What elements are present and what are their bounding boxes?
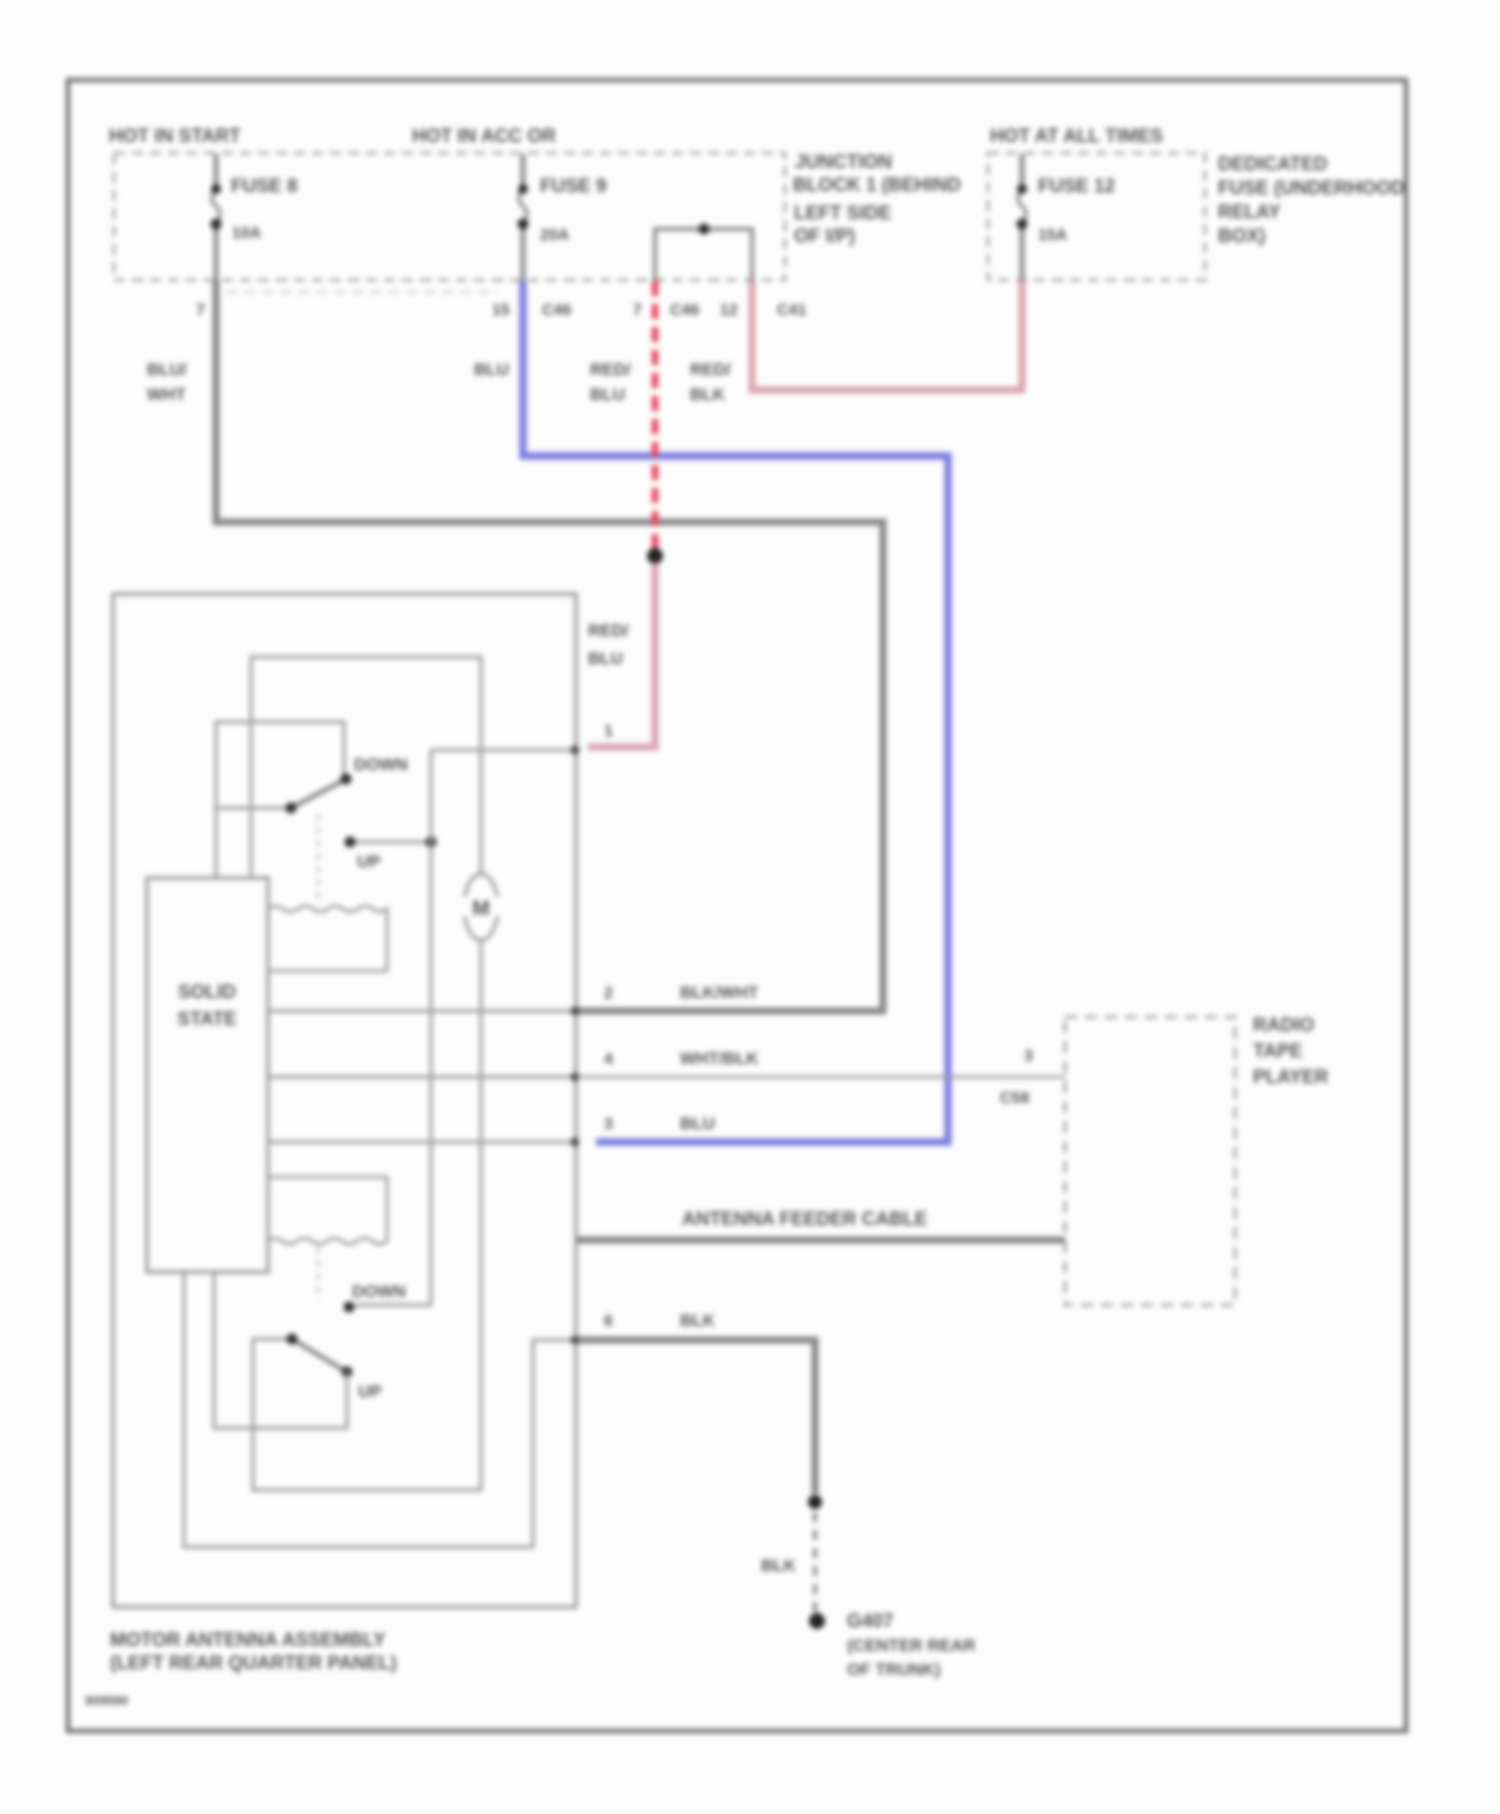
- svg-text:1: 1: [604, 723, 613, 740]
- svg-text:RED/: RED/: [590, 360, 631, 379]
- svg-text:FUSE 9: FUSE 9: [540, 176, 607, 197]
- svg-text:BLOCK 1 (BEHIND: BLOCK 1 (BEHIND: [793, 175, 961, 196]
- svg-text:WHT/BLK: WHT/BLK: [680, 1049, 759, 1068]
- svg-text:HOT IN START: HOT IN START: [109, 126, 241, 147]
- svg-text:BLU: BLU: [590, 385, 625, 404]
- svg-text:7: 7: [196, 302, 205, 319]
- svg-text:10A: 10A: [232, 225, 262, 242]
- svg-text:4: 4: [604, 1051, 613, 1068]
- svg-text:BLK: BLK: [690, 385, 726, 404]
- svg-text:DEDICATED: DEDICATED: [1218, 154, 1327, 175]
- svg-text:SOLID: SOLID: [178, 982, 236, 1003]
- svg-text:(CENTER REAR: (CENTER REAR: [847, 1636, 975, 1655]
- svg-text:RED/: RED/: [690, 360, 731, 379]
- svg-text:BLK/WHT: BLK/WHT: [680, 983, 759, 1002]
- svg-text:6: 6: [604, 1313, 613, 1330]
- svg-text:15: 15: [492, 302, 510, 319]
- svg-text:TAPE: TAPE: [1253, 1041, 1302, 1062]
- svg-text:DOWN: DOWN: [354, 755, 408, 774]
- svg-text:LEFT SIDE: LEFT SIDE: [794, 203, 891, 224]
- svg-text:FUSE 12: FUSE 12: [1038, 176, 1115, 197]
- svg-text:20A: 20A: [540, 227, 570, 244]
- svg-text:BLU: BLU: [474, 360, 509, 379]
- svg-text:RED/: RED/: [588, 621, 629, 640]
- svg-text:15A: 15A: [1038, 227, 1068, 244]
- svg-text:12: 12: [720, 302, 738, 319]
- svg-text:M: M: [472, 897, 490, 920]
- svg-text:RADIO: RADIO: [1253, 1015, 1314, 1036]
- svg-text:3: 3: [604, 1116, 613, 1133]
- svg-text:UP: UP: [358, 1382, 382, 1401]
- svg-text:HOT AT ALL TIMES: HOT AT ALL TIMES: [990, 126, 1163, 147]
- svg-text:ANTENNA FEEDER CABLE: ANTENNA FEEDER CABLE: [682, 1209, 927, 1230]
- svg-text:OF I/P): OF I/P): [794, 226, 855, 247]
- svg-text:BLU/: BLU/: [147, 360, 187, 379]
- svg-text:WHT: WHT: [147, 385, 186, 404]
- svg-text:FUSE (UNDERHOOD: FUSE (UNDERHOOD: [1218, 178, 1405, 199]
- svg-text:PLAYER: PLAYER: [1253, 1067, 1329, 1088]
- svg-text:C58: C58: [1000, 1090, 1029, 1107]
- svg-text:7: 7: [633, 302, 642, 319]
- svg-text:G407: G407: [847, 1611, 893, 1632]
- svg-text:BOX): BOX): [1218, 226, 1266, 247]
- svg-text:DOWN: DOWN: [352, 1282, 406, 1301]
- svg-text:3: 3: [1024, 1048, 1033, 1065]
- svg-text:2: 2: [604, 985, 613, 1002]
- svg-text:C46: C46: [670, 302, 699, 319]
- svg-text:HOT IN ACC OR: HOT IN ACC OR: [412, 126, 556, 147]
- svg-text:BLK: BLK: [680, 1311, 716, 1330]
- svg-text:STATE: STATE: [177, 1009, 236, 1030]
- svg-text:BLU: BLU: [588, 649, 623, 668]
- svg-text:BLU: BLU: [680, 1114, 715, 1133]
- svg-text:FUSE 8: FUSE 8: [231, 176, 298, 197]
- svg-text:OF TRUNK): OF TRUNK): [847, 1660, 940, 1679]
- svg-text:909590: 909590: [85, 1693, 128, 1708]
- svg-text:BLK: BLK: [761, 1556, 797, 1575]
- svg-text:C41: C41: [777, 302, 806, 319]
- svg-text:UP: UP: [357, 852, 381, 871]
- svg-text:RELAY: RELAY: [1218, 202, 1281, 223]
- svg-text:(LEFT REAR QUARTER PANEL): (LEFT REAR QUARTER PANEL): [110, 1653, 397, 1674]
- svg-text:MOTOR ANTENNA ASSEMBLY: MOTOR ANTENNA ASSEMBLY: [110, 1630, 386, 1651]
- svg-text:C46: C46: [542, 302, 571, 319]
- svg-text:JUNCTION: JUNCTION: [795, 152, 892, 173]
